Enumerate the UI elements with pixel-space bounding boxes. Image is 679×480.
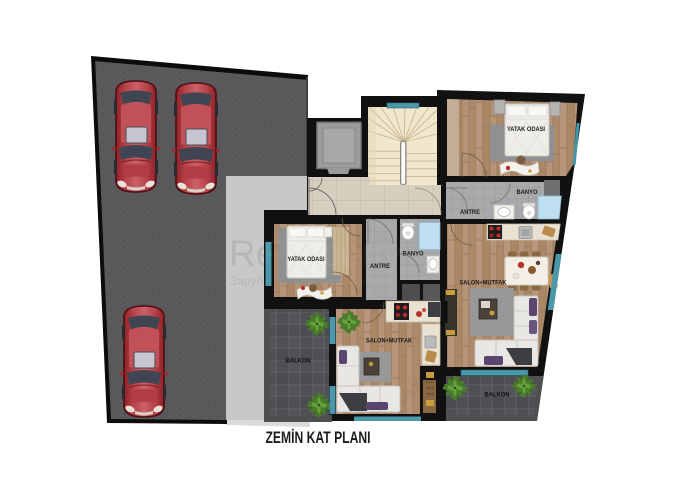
svg-text:YATAK ODASI: YATAK ODASI (507, 126, 545, 133)
svg-text:BALKON: BALKON (286, 359, 311, 365)
svg-text:недвижимость: недвижимость (300, 274, 381, 288)
svg-text:Property: Property (262, 233, 402, 274)
svg-text:ZEMİN KAT PLANI: ZEMİN KAT PLANI (266, 429, 371, 447)
svg-text:ANTRE: ANTRE (460, 210, 480, 216)
svg-text:BANYO: BANYO (517, 190, 538, 196)
svg-text:BALKON: BALKON (485, 393, 510, 399)
svg-text:SALON+MUTFAK: SALON+MUTFAK (366, 339, 413, 345)
svg-text:SALON+MUTFAK: SALON+MUTFAK (460, 281, 508, 287)
